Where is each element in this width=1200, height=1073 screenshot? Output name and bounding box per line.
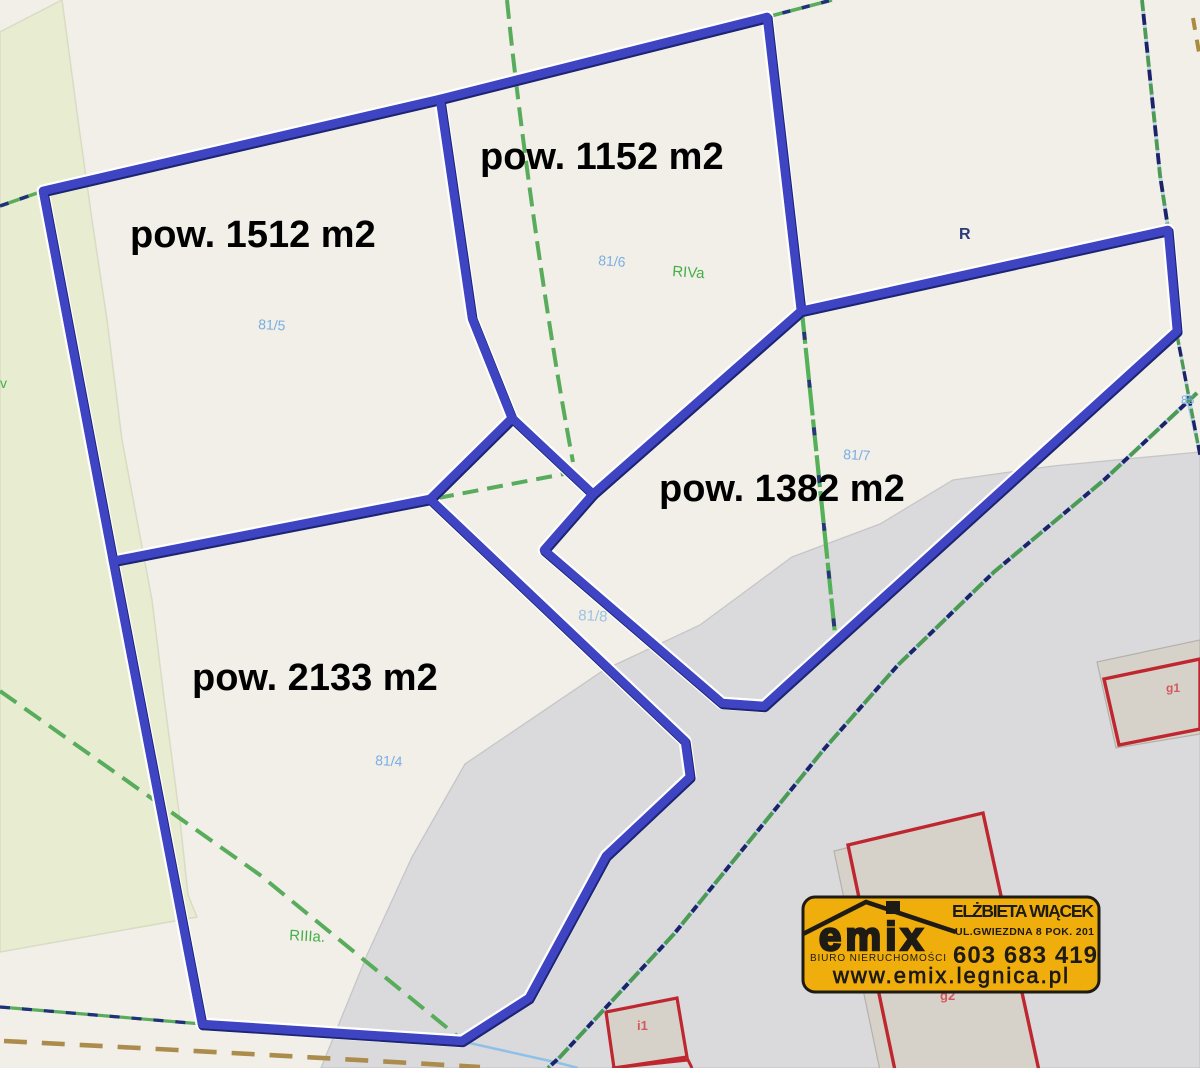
svg-text:UL.GWIEZDNA 8 POK. 201: UL.GWIEZDNA 8 POK. 201: [955, 926, 1094, 938]
svg-text:81/4: 81/4: [375, 752, 403, 769]
svg-text:R: R: [959, 226, 971, 243]
svg-text:RIVa: RIVa: [672, 263, 706, 282]
svg-text:85: 85: [1181, 393, 1195, 407]
svg-text:pow. 1382 m2: pow. 1382 m2: [659, 468, 905, 510]
svg-text:81/6: 81/6: [598, 252, 627, 270]
svg-text:ELŻBIETA WIĄCEK: ELŻBIETA WIĄCEK: [952, 901, 1094, 921]
svg-text:pow. 2133 m2: pow. 2133 m2: [192, 657, 438, 699]
svg-text:v: v: [0, 375, 7, 391]
svg-text:RIIIa.: RIIIa.: [289, 927, 326, 946]
svg-text:81/5: 81/5: [258, 316, 286, 333]
svg-text:pow. 1152 m2: pow. 1152 m2: [480, 136, 724, 178]
svg-text:pow. 1512 m2: pow. 1512 m2: [130, 214, 376, 256]
svg-text:81/8: 81/8: [578, 607, 608, 626]
svg-text:g1: g1: [1166, 681, 1180, 695]
svg-text:i1: i1: [637, 1018, 648, 1033]
svg-text:81/7: 81/7: [843, 446, 871, 463]
